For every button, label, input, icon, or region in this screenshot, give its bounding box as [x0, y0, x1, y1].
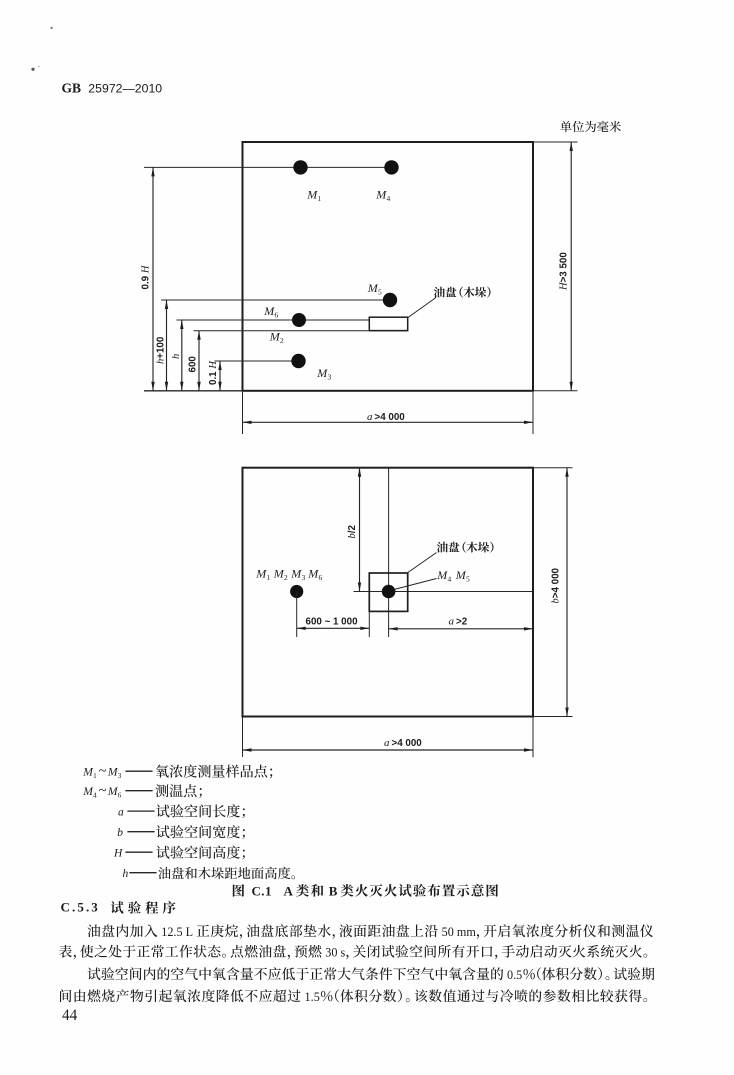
svg-text:0.1: 0.1	[208, 371, 219, 385]
svg-text:6: 6	[275, 310, 279, 319]
svg-text:>4 000: >4 000	[551, 567, 562, 598]
svg-text:H: H	[113, 848, 123, 860]
svg-text:4: 4	[387, 194, 391, 203]
svg-text:+100: +100	[156, 336, 167, 359]
svg-text:1: 1	[267, 573, 271, 582]
svg-text:M: M	[269, 330, 281, 344]
svg-text:12.5 L: 12.5 L	[161, 925, 193, 939]
svg-text:C.1: C.1	[252, 884, 272, 899]
svg-text:a: a	[118, 807, 124, 819]
svg-text:600 ~ 1 000: 600 ~ 1 000	[306, 616, 359, 627]
svg-text:M: M	[255, 567, 267, 581]
svg-text:B: B	[329, 884, 338, 899]
svg-text:0.5: 0.5	[507, 968, 522, 982]
svg-text:600: 600	[188, 356, 199, 373]
svg-text:5: 5	[466, 574, 470, 583]
svg-text:M: M	[436, 568, 448, 582]
svg-text:44: 44	[62, 1007, 78, 1024]
svg-text:>2: >2	[456, 617, 468, 628]
svg-text:0.9: 0.9	[141, 275, 152, 289]
svg-text:~: ~	[99, 764, 107, 780]
svg-text:4: 4	[93, 791, 97, 799]
svg-text:a: a	[449, 616, 455, 628]
svg-text:1.5: 1.5	[305, 990, 320, 1004]
svg-text:b: b	[117, 827, 123, 839]
svg-text:M: M	[273, 567, 285, 581]
svg-text:M: M	[306, 188, 318, 202]
svg-text:h: h	[123, 868, 129, 880]
svg-text:A: A	[284, 884, 294, 899]
svg-text:M: M	[367, 281, 379, 295]
svg-text:a: a	[384, 737, 390, 749]
svg-text:GB: GB	[62, 81, 82, 96]
svg-text:M: M	[455, 568, 467, 582]
svg-text:~: ~	[99, 783, 107, 799]
svg-text:C.5.3: C.5.3	[61, 900, 100, 915]
svg-text:M: M	[307, 567, 319, 581]
svg-text:>4 000: >4 000	[375, 412, 406, 423]
svg-text:M: M	[316, 366, 328, 380]
svg-text:3: 3	[328, 372, 332, 381]
svg-text:2: 2	[280, 336, 284, 345]
svg-text:M: M	[263, 304, 275, 318]
svg-text:H: H	[141, 264, 152, 274]
svg-text:3: 3	[302, 573, 306, 582]
svg-text:/2: /2	[347, 525, 358, 534]
svg-text:6: 6	[118, 791, 122, 799]
svg-text:50 mm: 50 mm	[442, 925, 477, 939]
svg-text:25972—2010: 25972—2010	[88, 82, 162, 96]
svg-text:1: 1	[318, 194, 322, 203]
svg-text:M: M	[290, 567, 302, 581]
svg-text:2: 2	[284, 573, 288, 582]
svg-text:6: 6	[319, 573, 323, 582]
svg-text:h: h	[171, 354, 182, 359]
svg-text:3: 3	[118, 772, 122, 780]
svg-text:M: M	[375, 188, 387, 202]
svg-text:5: 5	[378, 287, 382, 296]
svg-text:H: H	[208, 360, 219, 370]
svg-text:a: a	[367, 411, 373, 423]
svg-text:>4 000: >4 000	[392, 738, 423, 749]
svg-text:30 s: 30 s	[325, 946, 345, 960]
svg-text:4: 4	[448, 574, 452, 583]
svg-text:>3 500: >3 500	[559, 252, 570, 283]
svg-text:1: 1	[93, 772, 97, 780]
